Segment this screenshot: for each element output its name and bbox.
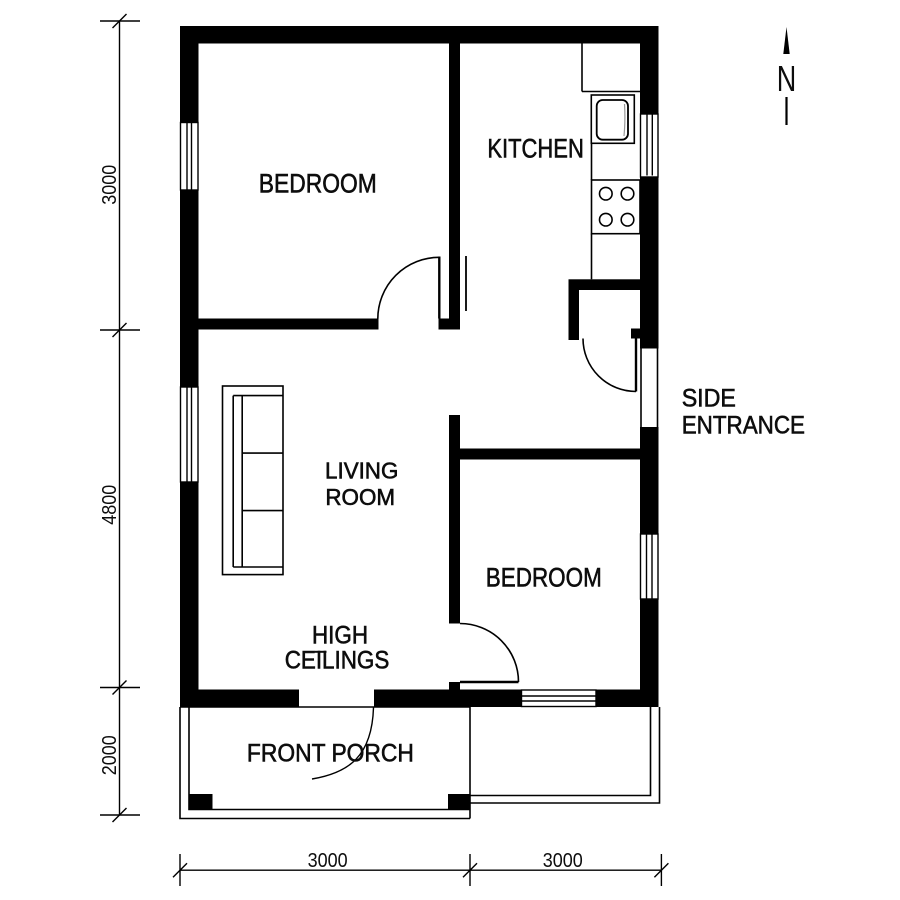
svg-text:CEILINGS: CEILINGS xyxy=(285,646,390,674)
svg-text:N: N xyxy=(777,58,797,99)
svg-text:KITCHEN: KITCHEN xyxy=(487,134,584,164)
svg-text:SIDE: SIDE xyxy=(682,385,736,413)
svg-text:3000: 3000 xyxy=(308,850,348,872)
svg-text:LIVING: LIVING xyxy=(325,457,398,483)
svg-text:FRONT PORCH: FRONT PORCH xyxy=(247,740,414,768)
svg-text:ROOM: ROOM xyxy=(325,484,395,510)
svg-text:3000: 3000 xyxy=(543,850,583,872)
svg-text:4800: 4800 xyxy=(99,485,121,525)
svg-text:ENTRANCE: ENTRANCE xyxy=(682,411,805,439)
svg-text:2000: 2000 xyxy=(99,735,121,775)
svg-text:BEDROOM: BEDROOM xyxy=(259,169,377,199)
svg-text:BEDROOM: BEDROOM xyxy=(486,563,602,593)
svg-text:3000: 3000 xyxy=(99,165,121,205)
